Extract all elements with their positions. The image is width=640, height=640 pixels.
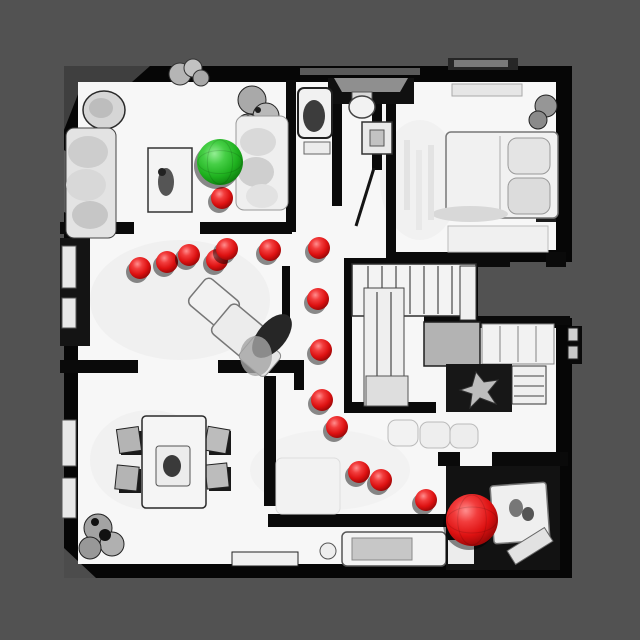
stair-carpet: [366, 376, 408, 406]
wall-corridor-elbow: [294, 360, 304, 390]
radiator-left-4: [62, 478, 76, 518]
dining-chair-3: [204, 426, 230, 453]
corner-plant-dark-2: [91, 518, 99, 526]
waypoint-sphere-6: [216, 238, 238, 260]
vanity-sink: [370, 130, 384, 146]
plant-over-top-wall-3: [193, 70, 209, 86]
waypoint-sphere-7: [259, 239, 281, 261]
dining-centerpiece: [163, 455, 181, 477]
mantel-ledge-top: [334, 78, 408, 92]
bed-pillow-2: [508, 178, 550, 214]
sofa-faint-left: [276, 458, 340, 514]
wall-bevel-top: [300, 68, 420, 75]
waypoint-sphere-13: [348, 461, 370, 483]
table-figurine-detail: [158, 168, 166, 176]
armchair-cushion: [89, 98, 113, 118]
waypoint-sphere-4: [178, 244, 200, 266]
desk-artwork-1: [509, 499, 523, 517]
sofa-cushion-3: [450, 424, 478, 448]
couch-left-cushion-2: [66, 169, 106, 201]
exterior-tab-2: [568, 346, 578, 359]
recliner-texture: [240, 336, 272, 376]
sofa-cushion-1: [388, 420, 418, 446]
dining-chair-4: [205, 463, 229, 489]
wall-stub-hall: [200, 222, 292, 234]
waypoint-sphere-1: [211, 187, 233, 209]
toilet-bowl: [349, 96, 375, 118]
bed-blanket-shade: [432, 206, 508, 222]
daybed-cushion-3: [246, 184, 278, 208]
exterior-tab-1: [568, 328, 578, 341]
daybed-cushion-2: [238, 157, 274, 187]
waypoint-sphere-2: [129, 257, 151, 279]
bedroom-closet-strip: [452, 84, 522, 96]
waypoint-sphere-3: [156, 251, 178, 273]
radiator-left-3: [62, 420, 76, 466]
wall-stair-left: [344, 258, 352, 412]
corner-plant-3: [79, 537, 101, 559]
desk-artwork-2: [522, 507, 534, 521]
waypoint-sphere-12: [326, 416, 348, 438]
dining-chair-1: [116, 427, 141, 454]
daybed-cushion-1: [240, 128, 276, 156]
waypoint-sphere-15: [415, 489, 437, 511]
bedroom-plant-2: [529, 111, 547, 129]
toilet-bottom: [320, 543, 336, 559]
bedroom-rug-line-1: [404, 140, 410, 210]
waypoint-sphere-10: [310, 339, 332, 361]
wall-bump-above-bed-top: [454, 60, 508, 67]
bed-pillow-1: [508, 138, 550, 174]
corner-plant-dark-1: [99, 529, 111, 541]
couch-left-cushion-1: [68, 136, 108, 168]
bedroom-rug-line-2: [416, 150, 422, 230]
goal-sphere: [446, 494, 498, 546]
waypoint-sphere-11: [311, 389, 333, 411]
radiator-left-1: [62, 246, 76, 288]
bath-shelf: [304, 142, 330, 154]
waypoint-sphere-8: [308, 237, 330, 259]
stair-slat-notch: [460, 266, 476, 320]
dining-chair-2: [115, 465, 139, 491]
indoor-tree-speckle-1: [255, 107, 261, 113]
radiator-left-2: [62, 298, 76, 328]
wall-bedroom-bottom-b: [546, 252, 566, 267]
bedroom-rug-line-3: [428, 145, 434, 220]
wall-dining-right: [264, 376, 276, 506]
stair-landing-gray: [424, 322, 480, 366]
bathtub-inner: [352, 538, 412, 560]
wall-br-room-a: [438, 452, 460, 466]
waypoint-sphere-14: [370, 469, 392, 491]
viewport[interactable]: [0, 0, 640, 640]
wall-br-room-b: [492, 452, 568, 466]
sofa-cushion-2: [420, 422, 450, 448]
wall-bedroom-left: [386, 80, 396, 260]
start-sphere: [197, 139, 243, 185]
couch-left-cushion-3: [72, 201, 108, 229]
wall-dining-top-left: [60, 360, 138, 373]
bath-basin-bowl: [303, 100, 325, 132]
waypoint-sphere-9: [307, 288, 329, 310]
floorplan-layer: [60, 58, 582, 578]
bedroom-dresser-strip: [448, 226, 548, 252]
scene-svg[interactable]: [0, 0, 640, 640]
bottom-door-sliver: [232, 552, 298, 566]
